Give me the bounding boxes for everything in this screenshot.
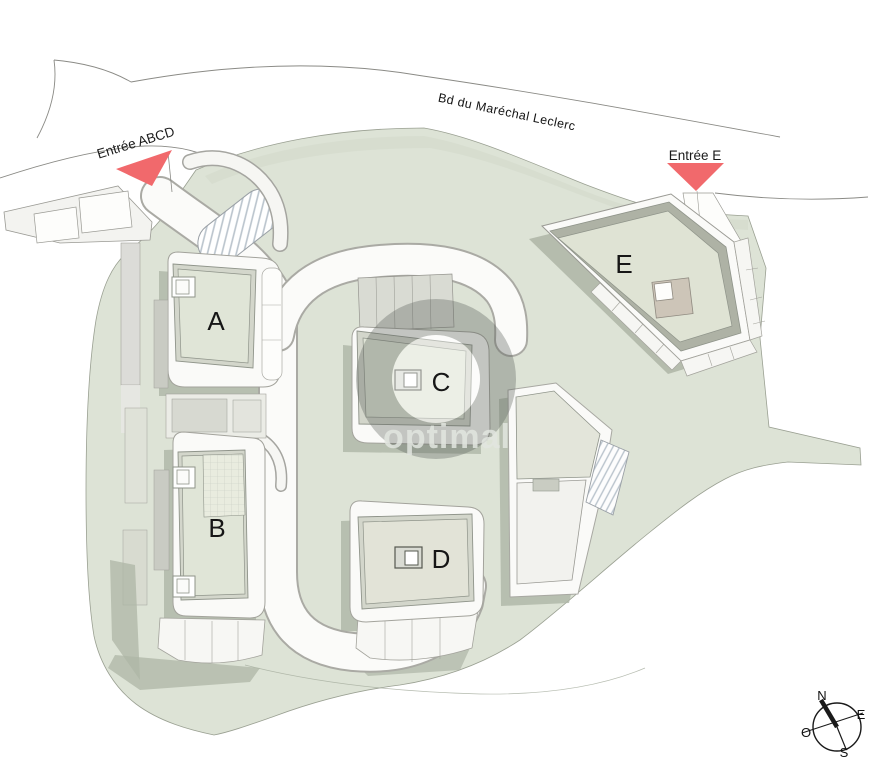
watermark-text: optimal xyxy=(383,418,511,456)
courtyard-ab xyxy=(166,394,266,438)
deck-step xyxy=(533,479,559,491)
compass-e: E xyxy=(857,707,866,722)
building-b-side-wall xyxy=(154,470,169,570)
boulevard-upper-edge-left xyxy=(131,66,423,82)
entrance-e-label: Entrée E xyxy=(669,148,722,163)
building-d-label: D xyxy=(432,544,451,574)
site-plan-svg: optimal Bd du Maréchal Leclerc Entrée AB… xyxy=(0,0,870,765)
terraces-below-b xyxy=(158,618,265,663)
offsite-parking-wedge xyxy=(4,186,152,243)
compass-s: S xyxy=(840,745,849,760)
building-b-label: B xyxy=(208,513,225,543)
garden-strip xyxy=(125,408,147,503)
building-a-balcony-strip xyxy=(262,268,282,380)
compass-n: N xyxy=(817,688,826,703)
side-street-edge xyxy=(37,60,55,138)
site-plan-image: optimal Bd du Maréchal Leclerc Entrée AB… xyxy=(0,0,870,765)
side-street-join xyxy=(54,60,131,82)
building-e-rooftop-block xyxy=(652,278,693,318)
access-road-vertical xyxy=(121,243,140,385)
compass-o: O xyxy=(801,725,811,740)
building-e-label: E xyxy=(615,249,632,279)
building-c-label: C xyxy=(432,367,451,397)
parking-bay xyxy=(79,191,132,233)
entrance-e-marker xyxy=(667,163,724,191)
building-a-label: A xyxy=(207,306,225,336)
building-a-side-wall xyxy=(154,300,168,388)
boulevard-lower-edge-right xyxy=(715,193,868,199)
building-d xyxy=(350,501,484,622)
compass-rose: N E S O xyxy=(801,688,866,760)
